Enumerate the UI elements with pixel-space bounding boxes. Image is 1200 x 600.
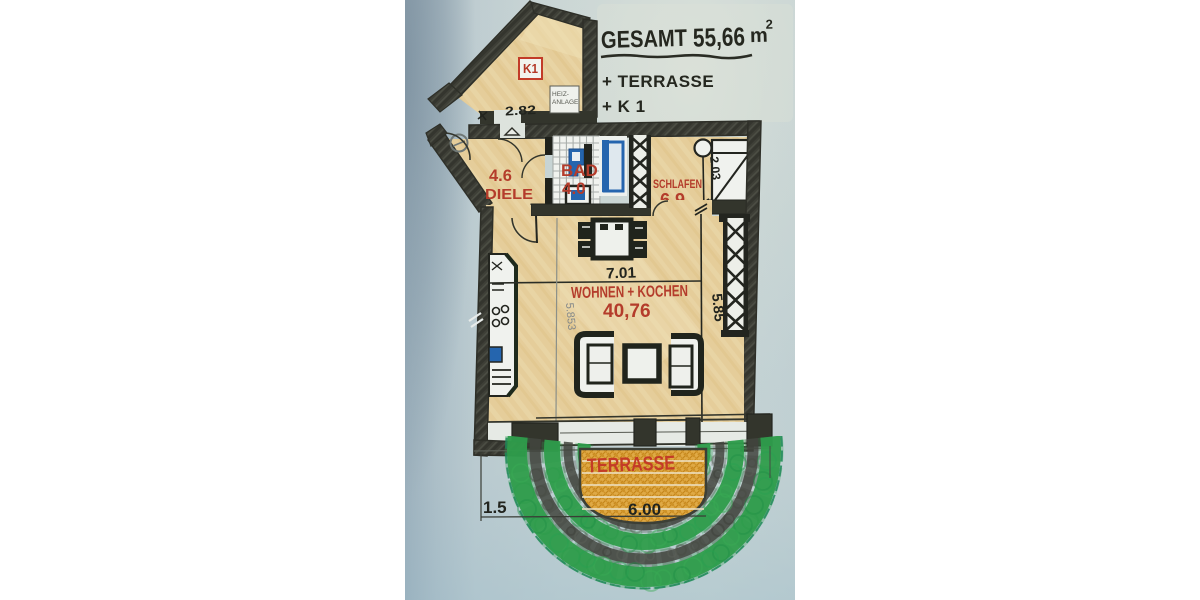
svg-text:DIELE: DIELE <box>485 186 533 203</box>
svg-text:1.5: 1.5 <box>483 498 507 517</box>
svg-text:GESAMT: GESAMT <box>601 25 688 54</box>
svg-text:2.03: 2.03 <box>707 156 723 181</box>
svg-text:HEIZ-: HEIZ- <box>552 91 569 98</box>
svg-text:55,66: 55,66 <box>693 21 746 52</box>
svg-text:2: 2 <box>765 17 773 32</box>
svg-text:2.82: 2.82 <box>505 103 537 119</box>
svg-text:SCHLAFEN: SCHLAFEN <box>653 177 702 191</box>
svg-text:5.853: 5.853 <box>563 302 577 330</box>
svg-text:4.0: 4.0 <box>562 179 586 198</box>
svg-text:+ TERRASSE: + TERRASSE <box>602 72 714 91</box>
svg-text:ANLAGE: ANLAGE <box>552 99 579 106</box>
svg-text:BAD: BAD <box>561 161 598 180</box>
svg-text:4.6: 4.6 <box>489 167 512 185</box>
svg-text:K1: K1 <box>523 62 538 76</box>
svg-text:40,76: 40,76 <box>603 301 651 322</box>
svg-text:7.01: 7.01 <box>606 264 637 282</box>
svg-text:WOHNEN + KOCHEN: WOHNEN + KOCHEN <box>571 283 688 302</box>
svg-text:5.85: 5.85 <box>708 293 727 323</box>
svg-text:TERRASSE: TERRASSE <box>587 452 676 477</box>
svg-text:+ K 1: + K 1 <box>602 97 646 116</box>
